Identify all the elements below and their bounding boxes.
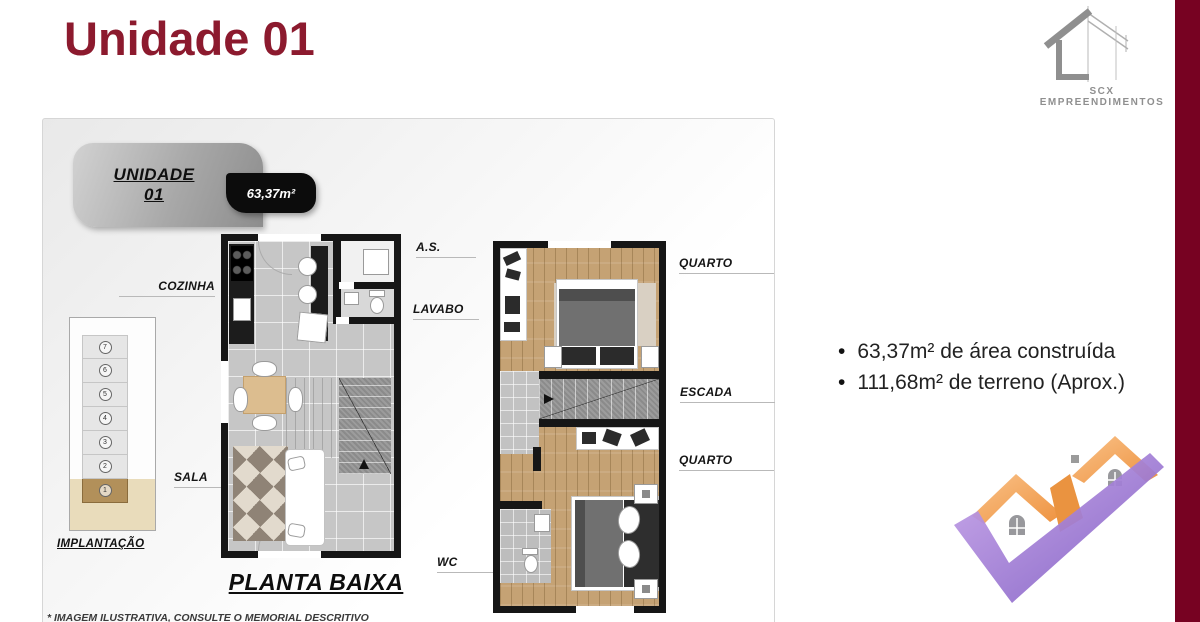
bullet-icon: •: [838, 336, 845, 367]
bed-blanket: [575, 500, 623, 587]
nightstand-handle: [642, 490, 650, 498]
bed-pillow: [562, 347, 596, 365]
basin: [298, 285, 317, 304]
label-lavabo: LAVABO: [413, 302, 479, 320]
landing-floor: [500, 371, 539, 454]
unit-badge-line1: UNIDADE: [114, 165, 195, 185]
feature-area: •63,37m² de área construída: [838, 336, 1158, 367]
label-cozinha: COZINHA: [119, 279, 215, 297]
door-swing: [258, 241, 292, 275]
plan-title: PLANTA BAIXA: [221, 569, 411, 596]
chair: [233, 387, 248, 412]
kitchen-sink: [233, 298, 251, 321]
scx-house-logo-icon: [1032, 4, 1172, 86]
implantacao-unit: 7: [82, 335, 128, 359]
wc-sink: [534, 514, 550, 532]
area-badge-value: 63,37m²: [247, 186, 295, 201]
chair: [252, 415, 277, 431]
slide: Unidade 01 SCX EMPREENDIMENTOS •63,37m² …: [0, 0, 1200, 622]
feature-list: •63,37m² de área construída •111,68m² de…: [838, 336, 1158, 398]
page-title: Unidade 01: [64, 12, 315, 66]
toilet-bowl: [524, 555, 538, 573]
stair-arrow-icon: [544, 394, 554, 404]
label-sala: SALA: [174, 470, 224, 488]
closet-item: [504, 322, 520, 332]
closet-item: [505, 296, 520, 314]
washing-machine: [363, 249, 389, 275]
plan-panel: UNIDADE 01 63,37m² 7 6 5 4 3 2 1 IMPLANT…: [42, 118, 775, 622]
stove: [231, 246, 253, 281]
door-opening: [339, 282, 354, 289]
label-escada: ESCADA: [680, 385, 775, 403]
lavabo-sink: [344, 292, 359, 305]
stair-arrow-icon: [359, 459, 369, 469]
interior-wall: [539, 419, 659, 427]
implantacao-diagram: 7 6 5 4 3 2 1: [69, 317, 156, 531]
shelf-item: [582, 432, 596, 444]
implantacao-unit: 3: [82, 431, 128, 455]
implantacao-unit-highlighted: 1: [82, 479, 128, 503]
label-wc: WC: [437, 555, 493, 573]
chair: [288, 387, 303, 412]
toilet-tank: [522, 548, 538, 555]
basin: [298, 257, 317, 276]
disclaimer-text: * IMAGEM ILUSTRATIVA, CONSULTE O MEMORIA…: [47, 612, 369, 622]
houses-check-logo-icon: [952, 428, 1176, 622]
label-quarto-inferior: QUARTO: [679, 453, 774, 471]
implantacao-label: IMPLANTAÇÃO: [57, 538, 144, 550]
interior-wall: [532, 371, 659, 379]
rug: [233, 446, 288, 541]
kitchen-cart: [297, 312, 329, 344]
door-opening: [258, 234, 321, 241]
floorplan-ground: [221, 234, 401, 558]
accent-band: [1175, 0, 1200, 622]
door-opening: [258, 551, 321, 558]
door-opening: [548, 241, 611, 248]
implantacao-unit: 6: [82, 359, 128, 383]
feature-terreno: •111,68m² de terreno (Aprox.): [838, 367, 1158, 398]
nightstand: [544, 346, 562, 368]
label-as: A.S.: [416, 240, 476, 258]
stairs: [539, 379, 659, 419]
sofa-pillow: [287, 523, 306, 539]
implantacao-units: 7 6 5 4 3 2 1: [82, 335, 128, 503]
implantacao-unit: 5: [82, 383, 128, 407]
implantacao-unit: 4: [82, 407, 128, 431]
bed-pillow: [600, 347, 634, 365]
floorplan-upper: [493, 241, 666, 613]
nightstand: [641, 346, 659, 368]
label-quarto-superior: QUARTO: [679, 256, 774, 274]
area-badge: 63,37m²: [226, 173, 316, 213]
nightstand-handle: [642, 585, 650, 593]
implantacao-unit: 2: [82, 455, 128, 479]
interior-wall: [500, 501, 542, 509]
door-opening: [576, 606, 634, 613]
door-opening: [221, 361, 228, 423]
chair: [252, 361, 277, 377]
toilet-tank: [369, 290, 385, 297]
toilet-bowl: [370, 297, 384, 314]
interior-wall: [533, 447, 541, 471]
brand-name: SCX EMPREENDIMENTOS: [1026, 86, 1178, 108]
bed-blanket: [559, 289, 635, 346]
dining-table: [243, 376, 286, 414]
bullet-icon: •: [838, 367, 845, 398]
door-opening: [336, 317, 349, 324]
unit-badge-line2: 01: [144, 185, 164, 205]
interior-wall: [333, 241, 341, 318]
